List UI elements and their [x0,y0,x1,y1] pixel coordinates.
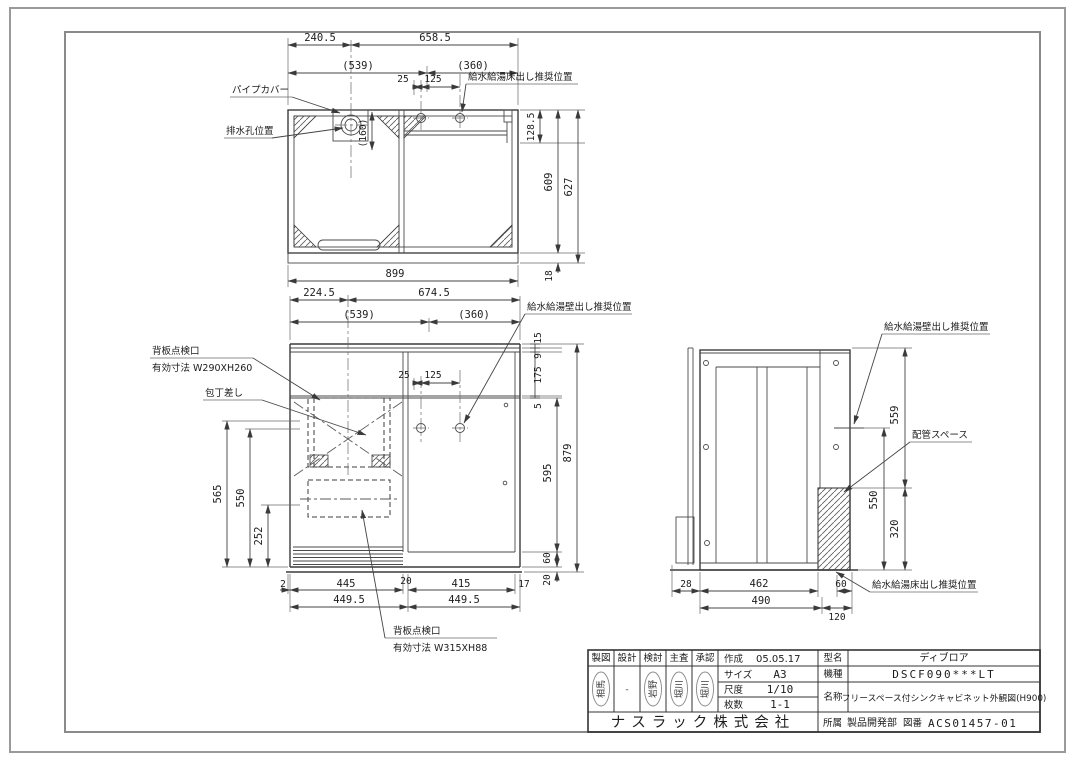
front-view-dimensions: 224.5 674.5 (539) (360) 25 125 565 550 2… [212,287,577,607]
top-view-body [288,110,518,263]
dim-front-449-5-right: 449.5 [448,594,480,606]
side-view-labels: 給水給湯壁出し推奨位置 配管スペース 給水給湯床出し推奨位置 [836,321,990,592]
stamp-seizu: 相馬 [595,680,607,698]
dim-side-490: 490 [752,595,771,607]
side-view: 28 462 60 490 120 559 550 320 給水給湯壁出し推奨位… [670,321,990,623]
wall-supply-label-front: 給水給湯壁出し推奨位置 [527,301,632,313]
inspect-upper-label-line2: 有効寸法 W290XH260 [152,362,252,374]
dim-side-550: 550 [868,491,880,510]
side-view-extension-lines [672,348,912,614]
dim-side-559: 559 [889,406,901,425]
name-label: 名称 [823,691,843,703]
dim-front-175: 175 [533,366,544,383]
dwg-no-label: 図番 [903,717,923,729]
dim-front-9: 9 [533,353,544,359]
floor-supply-label-top: 給水給湯床出し推奨位置 [468,71,573,83]
dim-front-445: 445 [337,578,356,590]
sheets-value: 1-1 [770,698,790,711]
dwg-no-value: ACS01457-01 [928,717,1017,730]
dim-top-627: 627 [563,178,575,197]
inspect-lower-label-line1: 背板点検口 [393,625,441,637]
dim-side-60: 60 [835,579,847,590]
cad-drawing: 240.5 658.5 (539) (360) 25 125 (160) 128… [0,0,1080,764]
model-value: ディブロア [919,651,968,664]
dim-top-360: (360) [457,60,489,72]
inspect-upper-label-line1: 背板点検口 [152,345,200,357]
dim-side-320: 320 [889,520,901,539]
floor-supply-label-side: 給水給湯床出し推奨位置 [872,579,977,591]
dim-top-160: (160) [358,119,369,148]
dept-value: 製品開発部 [847,716,897,729]
top-view: 240.5 658.5 (539) (360) 25 125 (160) 128… [224,32,585,287]
model-label: 型名 [823,652,842,664]
dim-front-565: 565 [212,485,224,504]
dim-front-449-5-left: 449.5 [333,594,365,606]
dim-front-595: 595 [542,464,554,483]
dim-front-252: 252 [253,527,265,546]
dim-top-128-5: 128.5 [526,113,537,142]
title-block: 製図 設計 検討 主査 承認 相馬 - 岩野 堀川 堀川 作成 05.05.17… [588,650,1046,732]
header-kentou: 検討 [643,652,663,664]
dim-front-2: 2 [280,579,286,590]
side-view-dimensions: 28 462 60 490 120 559 550 320 [672,348,905,623]
stamp-kentou: 岩野 [647,680,659,698]
header-sekkei: 設計 [617,652,637,664]
pipe-space-label: 配管スペース [912,429,968,441]
created-label: 作成 [724,653,744,665]
name-value: フリースペース付シンクキャビネット外観図(H900) [842,692,1047,704]
knife-slot-label: 包丁差し [205,387,243,399]
size-value: A3 [773,668,786,681]
wall-supply-label-side: 給水給湯壁出し推奨位置 [884,321,989,333]
header-shusa: 主査 [669,652,689,664]
top-view-dimensions: 240.5 658.5 (539) (360) 25 125 (160) 128… [288,32,578,282]
dim-top-539: (539) [342,60,374,72]
dim-top-658-5: 658.5 [419,32,451,44]
type-label: 機種 [823,668,843,680]
dim-front-15: 15 [533,332,544,343]
dim-top-240-5: 240.5 [304,32,336,44]
dept-label: 所属 [823,718,842,729]
dim-top-25: 25 [397,74,408,85]
dim-front-60: 60 [542,552,553,564]
dim-top-125: 125 [424,74,441,85]
dim-front-550: 550 [235,489,247,508]
dim-front-539: (539) [343,309,375,321]
dim-top-609: 609 [543,173,555,192]
header-shounin: 承認 [695,652,715,664]
side-view-body [670,348,864,570]
dim-front-360: (360) [458,309,490,321]
drawing-page: 240.5 658.5 (539) (360) 25 125 (160) 128… [0,0,1080,764]
size-label: サイズ [724,669,753,681]
dim-front-25: 25 [398,370,409,381]
dim-front-879: 879 [562,444,574,463]
pipe-cover-label: パイプカバー [232,85,289,96]
company-name: ナスラック株式会社 [611,714,796,731]
dim-side-28: 28 [680,579,692,590]
type-value: DSCF090***LT [892,668,995,681]
inspect-lower-label-line2: 有効寸法 W315XH88 [393,642,487,654]
dim-top-899: 899 [386,268,405,280]
dim-front-20: 20 [542,574,553,586]
stamp-sekkei: - [625,685,628,695]
front-view: 224.5 674.5 (539) (360) 25 125 565 550 2… [150,287,632,654]
sheets-label: 枚数 [724,699,744,711]
dim-front-674-5: 674.5 [418,287,450,299]
front-view-labels: 背板点検口 有効寸法 W290XH260 包丁差し 給水給湯壁出し推奨位置 背板… [150,301,632,654]
dim-front-17: 17 [518,579,529,590]
scale-label: 尺度 [724,684,744,696]
dim-front-5: 5 [533,403,544,409]
created-value: 05.05.17 [756,654,801,665]
drain-hole-label: 排水孔位置 [226,125,274,137]
stamp-shounin: 堀川 [700,680,711,698]
dim-front-224-5: 224.5 [303,287,335,299]
dim-front-415: 415 [452,578,471,590]
dim-front-b20: 20 [400,576,412,587]
dim-side-120: 120 [828,612,845,623]
stamp-shusa: 堀川 [674,680,685,698]
dim-side-462: 462 [750,578,769,590]
dim-top-18: 18 [544,270,555,282]
scale-value: 1/10 [767,683,794,696]
dim-front-125: 125 [424,370,441,381]
header-seizu: 製図 [591,652,610,664]
